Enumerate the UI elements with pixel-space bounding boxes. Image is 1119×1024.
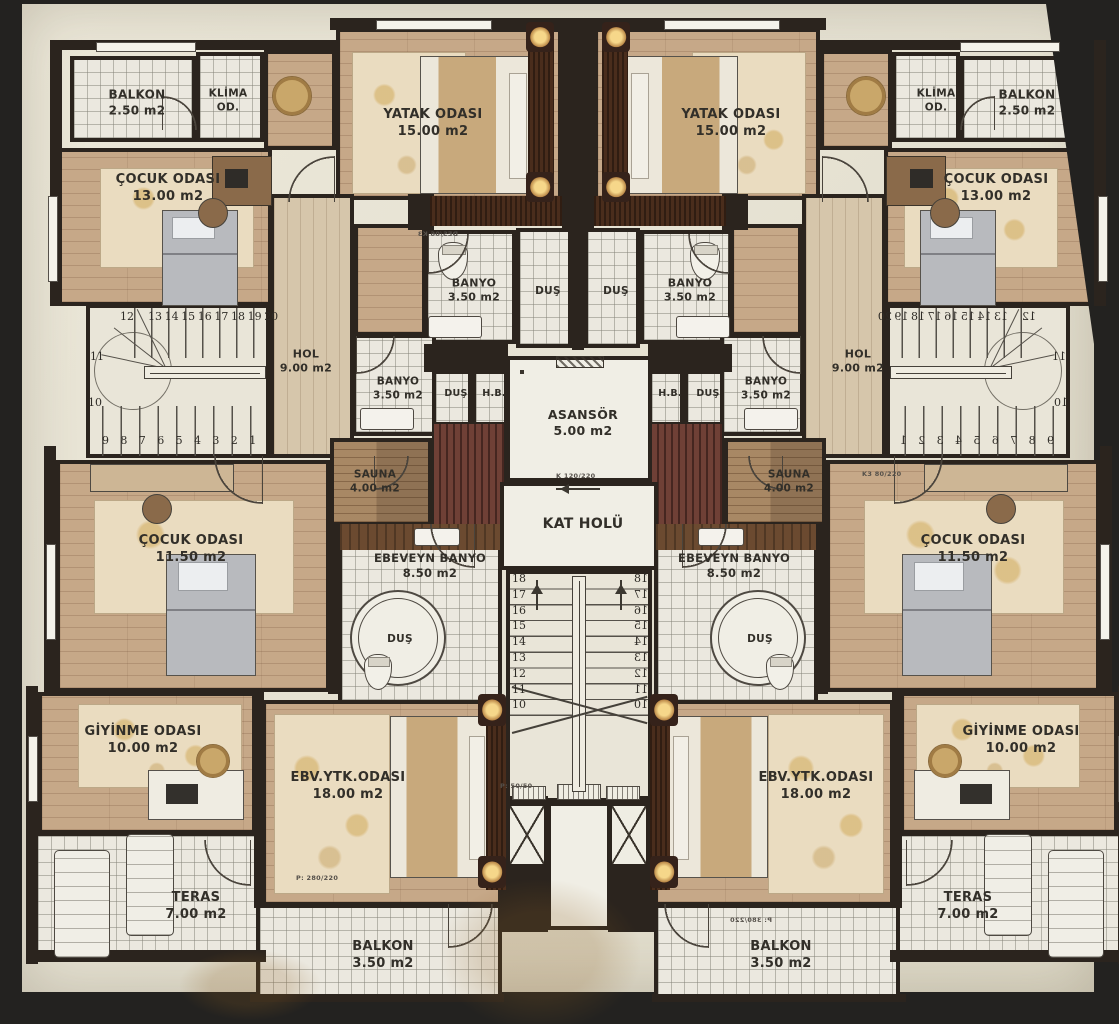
stair-number: 13 bbox=[630, 651, 648, 664]
stair-number: 10 bbox=[512, 698, 530, 711]
window bbox=[376, 20, 492, 30]
window bbox=[664, 20, 780, 30]
stair-number: 1 bbox=[249, 434, 267, 447]
room-label: KLİMAOD. bbox=[917, 87, 956, 114]
stair-number: 2 bbox=[907, 434, 925, 447]
stair-number: 10 bbox=[630, 698, 648, 711]
lounger bbox=[1048, 850, 1104, 958]
wall bbox=[892, 692, 902, 908]
rug bbox=[274, 714, 390, 894]
stair-handrail bbox=[890, 366, 1012, 379]
door-arc-icon bbox=[664, 904, 709, 948]
room-label: BALKON3.50 m2 bbox=[750, 939, 811, 973]
room-asansor: ASANSÖR5.00 m2 bbox=[506, 356, 652, 482]
door-arc-icon bbox=[448, 904, 493, 948]
stair-number: 8 bbox=[120, 434, 138, 447]
room-label: DUŞ bbox=[603, 285, 629, 299]
room-klima-odasi-right: KLİMAOD. bbox=[892, 52, 960, 142]
rug bbox=[768, 714, 884, 894]
bed-icon bbox=[166, 554, 256, 676]
room-sauna-left: SAUNA4.00 m2 bbox=[330, 438, 432, 526]
window bbox=[48, 196, 58, 282]
stair-number: 20 bbox=[874, 310, 892, 323]
room-label: BALKON2.50 m2 bbox=[109, 87, 166, 118]
stair-stringer bbox=[572, 576, 586, 792]
door-arc-icon bbox=[688, 234, 729, 274]
door-spec-label: P: 50/50 bbox=[500, 782, 560, 790]
stair-number: 16 bbox=[630, 604, 648, 617]
stair-number: 14 bbox=[973, 310, 991, 323]
room-label: DUŞ bbox=[387, 633, 413, 647]
desk-counter bbox=[924, 464, 1068, 492]
room-label: BANYO3.50 m2 bbox=[664, 277, 716, 306]
room-wood-pass-right bbox=[730, 224, 802, 336]
room-label: DUŞ bbox=[444, 388, 467, 400]
stair-treads bbox=[890, 406, 1054, 456]
stair-number: 12 bbox=[630, 667, 648, 680]
stair-number: 8 bbox=[1018, 434, 1036, 447]
stair-number: 14 bbox=[165, 310, 183, 323]
stair-number: 19 bbox=[248, 310, 266, 323]
wall bbox=[328, 524, 340, 694]
room-kat-holu: KAT HOLÜ bbox=[500, 482, 658, 570]
stair-up-arrow bbox=[536, 580, 538, 610]
bed-icon bbox=[162, 210, 238, 306]
stair-number: 5 bbox=[962, 434, 980, 447]
stair-number: 16 bbox=[512, 604, 530, 617]
room-label: HOL9.00 m2 bbox=[832, 348, 884, 377]
room-merdiven-left: 1213141516171819201110987654321 bbox=[86, 304, 270, 458]
wall bbox=[576, 226, 584, 350]
shaft-cross bbox=[612, 806, 646, 864]
stair-number: 12 bbox=[120, 310, 138, 323]
room-sauna-right: SAUNA4.00 m2 bbox=[724, 438, 826, 526]
window bbox=[960, 42, 1060, 52]
door-arc-icon bbox=[960, 96, 995, 130]
stair-number: 9 bbox=[1036, 434, 1054, 447]
stair-number: 14 bbox=[630, 635, 648, 648]
room-klima-odasi-left: KLİMAOD. bbox=[196, 52, 264, 142]
room-label: DUŞ bbox=[696, 388, 719, 400]
lamp-icon bbox=[478, 856, 506, 888]
room-giris-halisi-left bbox=[432, 422, 506, 526]
room-merdiven-right: 1213141516171819201110987654321 bbox=[886, 304, 1070, 458]
stair-number: 2 bbox=[231, 434, 249, 447]
lamp-icon bbox=[526, 172, 554, 202]
door-arc-icon bbox=[894, 456, 943, 504]
lamp-icon bbox=[526, 22, 554, 52]
room-label: EBEVEYN BANYO8.50 m2 bbox=[374, 551, 486, 581]
sink-icon bbox=[744, 408, 798, 430]
lamp-icon bbox=[602, 22, 630, 52]
bed-icon bbox=[668, 716, 768, 878]
door-arc-icon bbox=[162, 96, 197, 130]
stair-number: 18 bbox=[512, 572, 530, 585]
room-label: KLİMAOD. bbox=[209, 87, 248, 114]
stair-number: 11 bbox=[630, 683, 648, 696]
stair-number: 12 bbox=[1018, 310, 1036, 323]
door-arc-icon bbox=[356, 336, 395, 374]
room-label: TERAS7.00 m2 bbox=[937, 890, 998, 924]
sink-icon bbox=[360, 408, 414, 430]
stair-number: 1 bbox=[889, 434, 907, 447]
wicker-chair-icon bbox=[846, 76, 886, 116]
shaft bbox=[608, 802, 650, 868]
chair-icon bbox=[986, 494, 1016, 524]
stair-number: 17 bbox=[630, 588, 648, 601]
stair-number: 10 bbox=[88, 396, 106, 409]
door-arc-icon bbox=[204, 840, 251, 886]
stair-number: 11 bbox=[1048, 350, 1066, 363]
wall bbox=[254, 692, 264, 908]
stair-number: 15 bbox=[957, 310, 975, 323]
window bbox=[96, 42, 196, 52]
elevator-cab-outline bbox=[520, 370, 524, 374]
entry-arrow-icon bbox=[556, 488, 600, 490]
stair-number: 14 bbox=[512, 635, 530, 648]
door-spec-label: K 120/220 bbox=[556, 472, 616, 480]
stair-number: 9 bbox=[102, 434, 120, 447]
stair-number: 13 bbox=[990, 310, 1008, 323]
window bbox=[46, 544, 56, 640]
room-label: SAUNA4.00 m2 bbox=[350, 468, 400, 495]
room-label: KAT HOLÜ bbox=[543, 515, 624, 533]
lamp-icon bbox=[602, 172, 630, 202]
stair-number: 20 bbox=[264, 310, 282, 323]
vanity-desk bbox=[914, 770, 1010, 820]
lounger bbox=[54, 850, 110, 958]
shaft-cross bbox=[510, 806, 544, 864]
wall bbox=[250, 994, 504, 1002]
lamp-icon bbox=[650, 856, 678, 888]
window bbox=[1100, 544, 1110, 640]
stair-number: 15 bbox=[181, 310, 199, 323]
lamp-icon bbox=[478, 694, 506, 726]
stair-number: 15 bbox=[512, 619, 530, 632]
door-arc-icon bbox=[214, 456, 263, 504]
floor-plan: YATAK ODASI15.00 m2YATAK ODASI15.00 m2BA… bbox=[0, 0, 1119, 1024]
stair-number: 4 bbox=[194, 434, 212, 447]
door-arc-icon bbox=[288, 156, 335, 202]
room-label: YATAK ODASI15.00 m2 bbox=[681, 107, 780, 141]
room-label: EBV.YTK.ODASI18.00 m2 bbox=[291, 770, 406, 804]
room-orta-koridor bbox=[547, 802, 611, 930]
vent-grille bbox=[606, 786, 640, 800]
room-hol-left: HOL9.00 m2 bbox=[270, 194, 354, 458]
room-label: ÇOCUK ODASI13.00 m2 bbox=[944, 172, 1049, 206]
door-spec-label: P: 280/220 bbox=[296, 874, 356, 882]
room-giris-halisi-right bbox=[650, 422, 724, 526]
room-label: H.B. bbox=[482, 388, 506, 400]
bed-icon bbox=[902, 554, 992, 676]
window bbox=[1098, 196, 1108, 282]
stair-number: 13 bbox=[148, 310, 166, 323]
wall bbox=[424, 344, 508, 372]
room-label: GİYİNME ODASI10.00 m2 bbox=[963, 724, 1080, 758]
stair-number: 17 bbox=[512, 588, 530, 601]
room-label: DUŞ bbox=[535, 285, 561, 299]
wall bbox=[648, 344, 732, 372]
room-label: EBV.YTK.ODASI18.00 m2 bbox=[759, 770, 874, 804]
door-arc-icon bbox=[762, 336, 801, 374]
door-spec-label: K3 80/220 bbox=[862, 470, 922, 478]
room-label: HOL9.00 m2 bbox=[280, 348, 332, 377]
room-dus-ust-right: DUŞ bbox=[584, 228, 640, 348]
stair-number: 6 bbox=[157, 434, 175, 447]
stair-number: 7 bbox=[139, 434, 157, 447]
stair-number: 18 bbox=[907, 310, 925, 323]
room-merkez-merdiven: 181817171616151514141313121211111010 bbox=[506, 570, 652, 802]
wall bbox=[652, 994, 906, 1002]
sink-icon bbox=[676, 316, 730, 338]
stair-number: 10 bbox=[1050, 396, 1068, 409]
stair-number: 19 bbox=[890, 310, 908, 323]
lamp-icon bbox=[650, 694, 678, 726]
desk-counter bbox=[90, 464, 234, 492]
room-label: ÇOCUK ODASI11.50 m2 bbox=[139, 533, 244, 567]
floor-plan-photo: YATAK ODASI15.00 m2YATAK ODASI15.00 m2BA… bbox=[0, 0, 1119, 1024]
room-dus-ust-left: DUŞ bbox=[516, 228, 572, 348]
stair-number: 12 bbox=[512, 667, 530, 680]
door-arc-icon bbox=[906, 840, 953, 886]
bed-icon bbox=[920, 210, 996, 306]
wall bbox=[576, 22, 594, 228]
elevator-door-hatch bbox=[556, 356, 604, 368]
stair-number: 4 bbox=[944, 434, 962, 447]
room-label: TERAS7.00 m2 bbox=[165, 890, 226, 924]
desk-icon bbox=[886, 156, 946, 206]
room-label: SAUNA4.00 m2 bbox=[764, 468, 814, 495]
stair-number: 7 bbox=[999, 434, 1017, 447]
room-label: ÇOCUK ODASI13.00 m2 bbox=[116, 172, 221, 206]
room-label: BANYO3.50 m2 bbox=[741, 375, 791, 402]
stair-number: 17 bbox=[214, 310, 232, 323]
room-label: EBEVEYN BANYO8.50 m2 bbox=[678, 551, 790, 581]
sink-icon bbox=[428, 316, 482, 338]
stair-number: 13 bbox=[512, 651, 530, 664]
stair-number: 16 bbox=[198, 310, 216, 323]
room-label: BANYO3.50 m2 bbox=[373, 375, 423, 402]
room-label: BALKON3.50 m2 bbox=[352, 939, 413, 973]
wicker-chair-icon bbox=[272, 76, 312, 116]
room-hol-right: HOL9.00 m2 bbox=[802, 194, 886, 458]
room-label: ÇOCUK ODASI11.50 m2 bbox=[921, 533, 1026, 567]
room-label: BALKON2.50 m2 bbox=[999, 87, 1056, 118]
window bbox=[28, 736, 38, 802]
room-wood-pass-left bbox=[354, 224, 426, 336]
door-arc-icon bbox=[428, 234, 469, 274]
wall bbox=[816, 524, 828, 694]
stool-icon bbox=[928, 744, 962, 778]
room-label: GİYİNME ODASI10.00 m2 bbox=[85, 724, 202, 758]
stair-number: 3 bbox=[212, 434, 230, 447]
room-label: H.B. bbox=[658, 388, 682, 400]
stair-treads bbox=[102, 406, 266, 456]
chair-icon bbox=[142, 494, 172, 524]
door-spec-label: DES/06 K3 bbox=[398, 230, 458, 238]
door-arc-icon bbox=[822, 156, 869, 202]
stair-number: 17 bbox=[924, 310, 942, 323]
stair-handrail bbox=[144, 366, 266, 379]
shaft bbox=[506, 802, 548, 868]
door-spec-label: P: 380/220 bbox=[712, 916, 772, 924]
stair-number: 18 bbox=[630, 572, 648, 585]
room-label: ASANSÖR5.00 m2 bbox=[548, 407, 618, 440]
wall bbox=[26, 686, 38, 964]
stair-up-arrow bbox=[620, 580, 622, 610]
room-label: DUŞ bbox=[747, 633, 773, 647]
stair-number: 18 bbox=[231, 310, 249, 323]
stair-number: 5 bbox=[176, 434, 194, 447]
desk-icon bbox=[212, 156, 272, 206]
room-label: YATAK ODASI15.00 m2 bbox=[383, 107, 482, 141]
stair-number: 15 bbox=[630, 619, 648, 632]
stair-number: 6 bbox=[981, 434, 999, 447]
room-label: BANYO3.50 m2 bbox=[448, 277, 500, 306]
vanity-desk bbox=[148, 770, 244, 820]
stair-number: 3 bbox=[926, 434, 944, 447]
stair-number: 16 bbox=[940, 310, 958, 323]
stair-number: 11 bbox=[512, 683, 530, 696]
stair-number: 11 bbox=[90, 350, 108, 363]
